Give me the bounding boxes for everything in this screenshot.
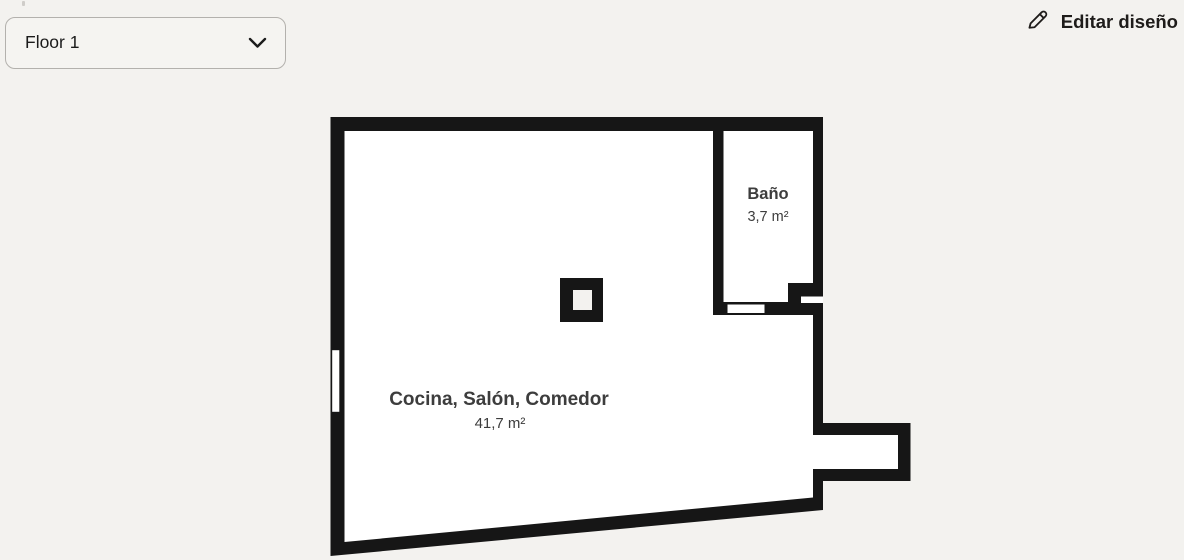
- floorplan-viewer: Floor 1 Editar diseño: [0, 0, 1184, 560]
- floorplan-canvas[interactable]: Baño 3,7 m² Cocina, Salón, Comedor 41,7 …: [0, 0, 1184, 560]
- pillar-core: [573, 290, 592, 310]
- window: [332, 350, 341, 413]
- room-area-cocina-salon-comedor: 41,7 m²: [475, 415, 526, 432]
- bathroom-door-opening: [728, 305, 765, 314]
- wall-opening: [801, 297, 823, 304]
- bathroom-wall-left: [713, 131, 724, 315]
- room-label-cocina-salon-comedor: Cocina, Salón, Comedor: [389, 389, 609, 410]
- room-label-bano: Baño: [747, 185, 788, 203]
- room-area-bano: 3,7 m²: [747, 209, 788, 225]
